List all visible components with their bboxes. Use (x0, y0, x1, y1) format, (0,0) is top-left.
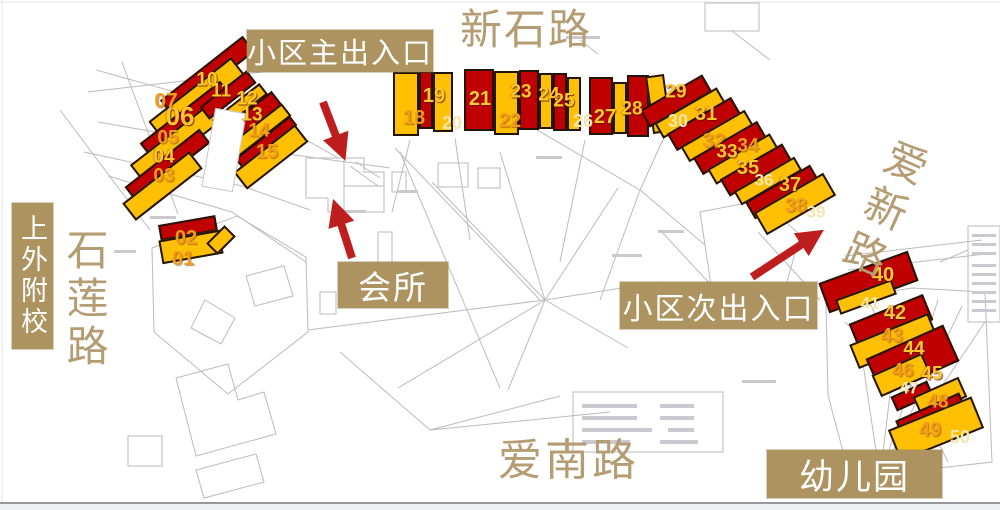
site-plan-map: 0102030405060710111213141518192021222324… (0, 0, 1000, 510)
kindergarten-label: 幼儿园 (767, 450, 942, 498)
main-entrance-label: 小区主出入口 (247, 30, 433, 72)
entrance-arrow (336, 208, 352, 258)
clubhouse-label: 会所 (338, 262, 448, 308)
road-name-south: 爱南路 (498, 438, 639, 484)
entrance-arrow (752, 235, 816, 277)
slide-bottom-border (0, 502, 1000, 510)
road-name-north: 新石路 (460, 8, 592, 52)
road-name-west: 石莲路 (62, 228, 106, 372)
school-label: 上外附校 (12, 203, 53, 349)
secondary-entrance-label: 小区次出入口 (620, 282, 817, 329)
entrance-arrow (323, 102, 342, 152)
